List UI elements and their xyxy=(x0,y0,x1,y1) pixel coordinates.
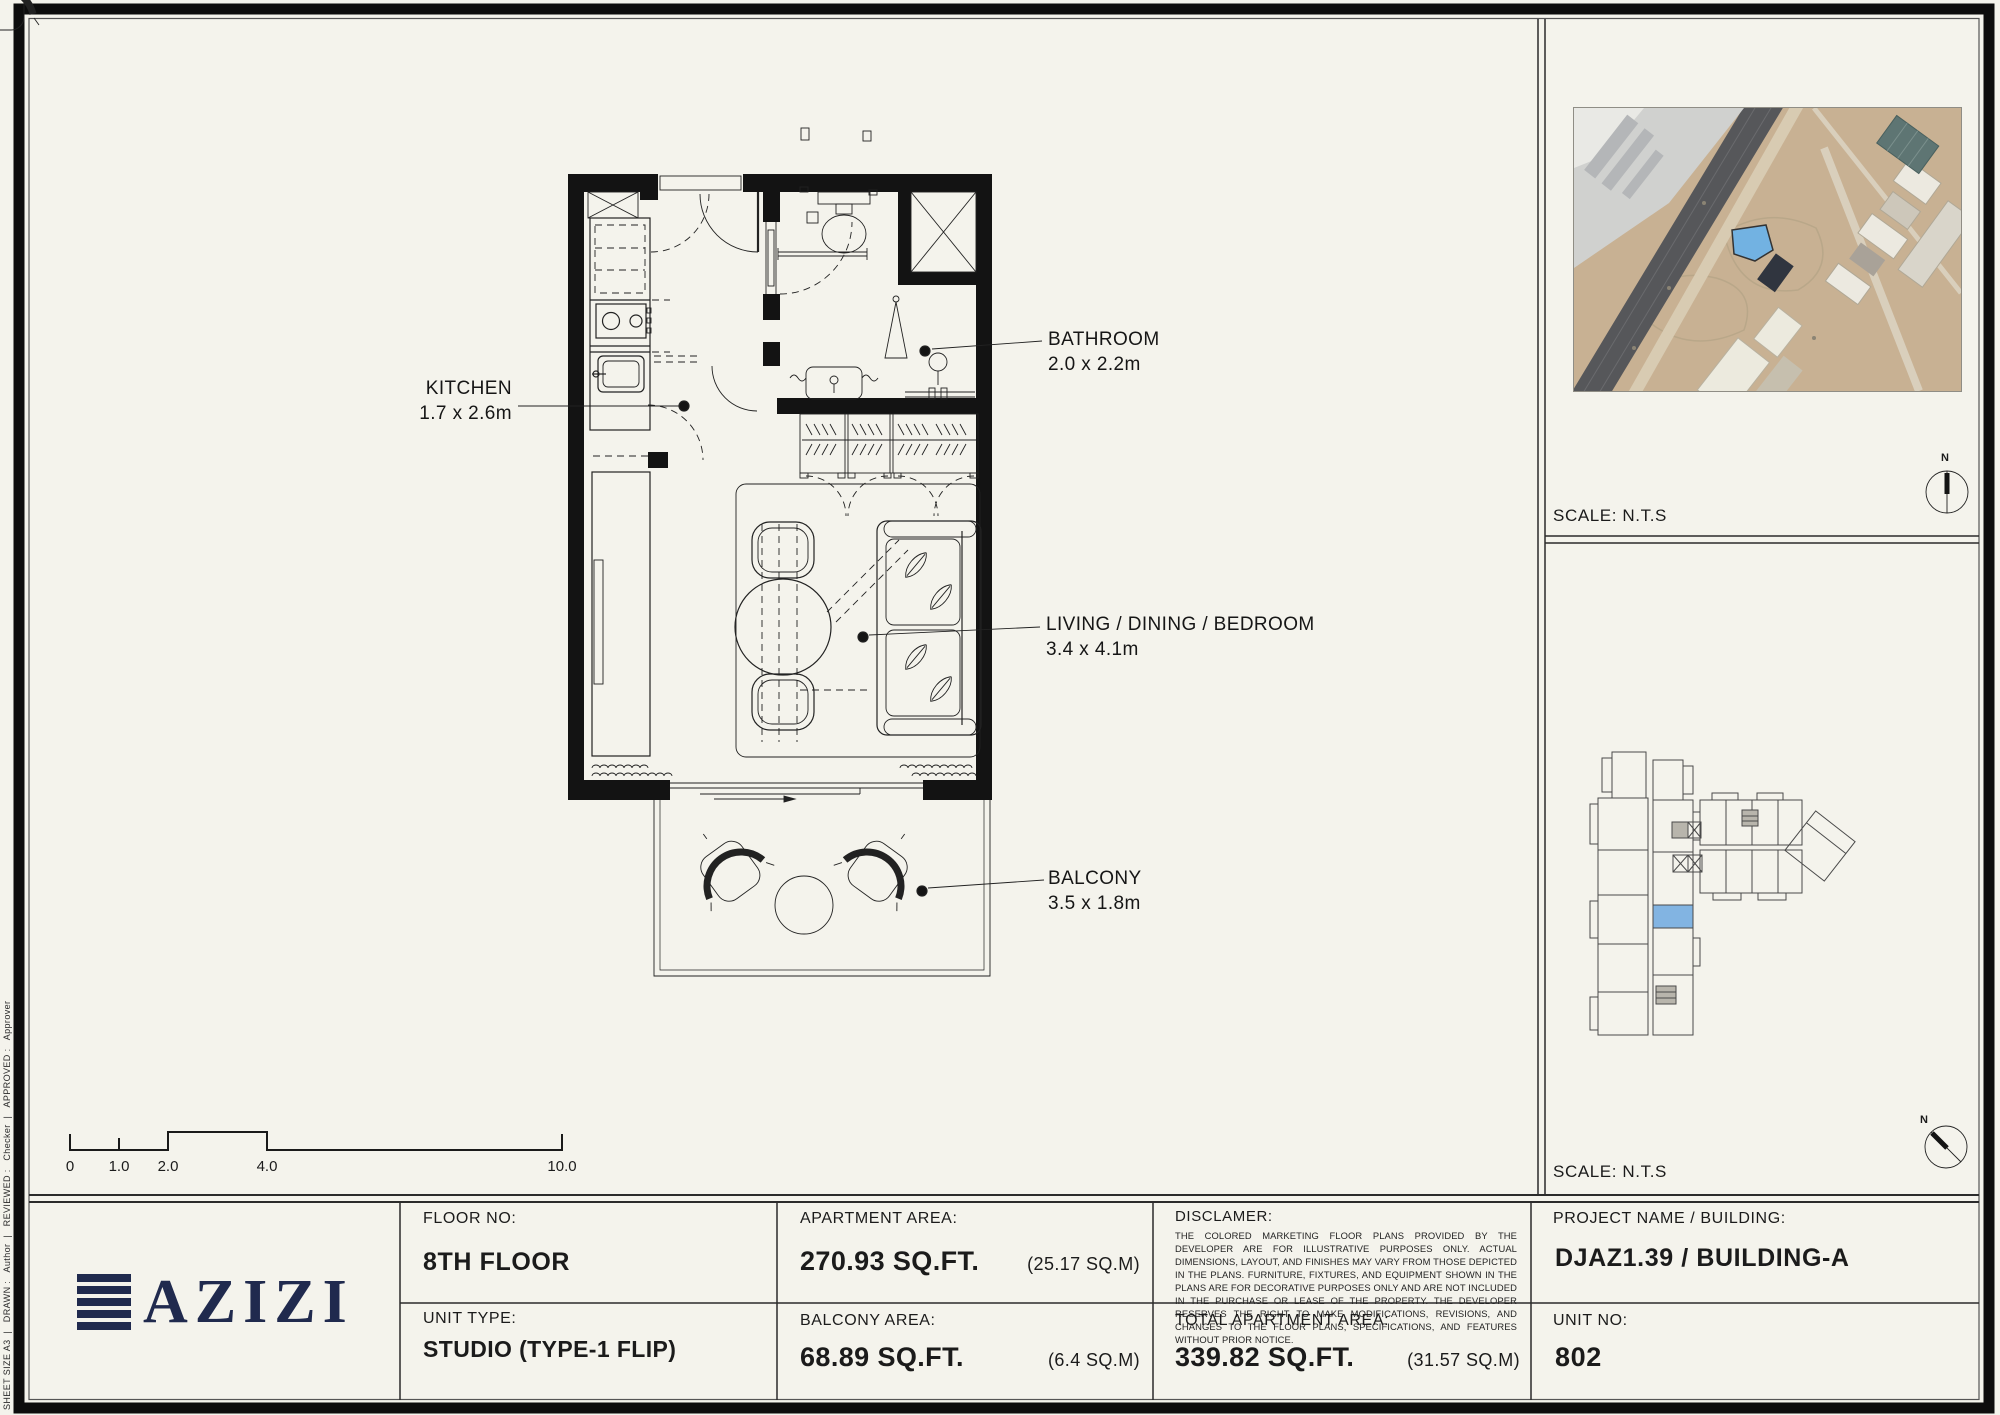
room-label-kitchen: KITCHEN 1.7 x 2.6m xyxy=(330,376,512,426)
drawn-label: DRAWN : xyxy=(2,1281,12,1322)
north-compass-icon xyxy=(1925,1126,1967,1168)
azizi-logo-bars-icon xyxy=(77,1274,131,1330)
curtain-icon xyxy=(592,773,672,776)
balcony-outline xyxy=(0,0,990,976)
north-compass-icon xyxy=(1926,471,1968,513)
scale-tick: 2.0 xyxy=(158,1158,179,1175)
floor-no-value: 8TH FLOOR xyxy=(423,1248,570,1277)
total-area-value: 339.82 SQ.FT. xyxy=(1175,1342,1354,1373)
dining-table-icon xyxy=(735,579,831,675)
room-label-living: LIVING / DINING / BEDROOM 3.4 x 4.1m xyxy=(1046,612,1315,662)
scale-tick: 0 xyxy=(66,1158,74,1175)
sheet-margin-info: SHEET SIZE A3 | DRAWN : Author | REVIEWE… xyxy=(2,698,12,1410)
wall-lamp-icon xyxy=(929,353,947,371)
total-area-sqm: (31.57 SQ.M) xyxy=(1407,1350,1520,1371)
scale-bar xyxy=(70,1132,562,1150)
highlighted-unit xyxy=(1653,905,1693,928)
total-area-row: 339.82 SQ.FT. (31.57 SQ.M) xyxy=(1175,1342,1520,1373)
reviewed-label: REVIEWED : xyxy=(2,1169,12,1226)
balcony-area-value: 68.89 SQ.FT. xyxy=(800,1342,964,1373)
sink-icon xyxy=(592,356,644,392)
room-name: KITCHEN xyxy=(426,378,512,399)
satellite-location-map xyxy=(1573,107,1962,392)
scale-tick: 1.0 xyxy=(109,1158,130,1175)
floor-no-label: FLOOR NO: xyxy=(423,1210,516,1228)
scale-tick: 10.0 xyxy=(547,1158,576,1175)
disclaimer-label: DISCLAMER: xyxy=(1175,1208,1273,1225)
north-label: N xyxy=(1920,1114,1928,1126)
dining-chair-icon xyxy=(752,522,814,578)
room-dims: 3.5 x 1.8m xyxy=(1048,893,1141,914)
leaf-cushion-icon xyxy=(901,549,956,705)
duct-shaft-icon xyxy=(588,192,638,218)
curtain-icon xyxy=(592,765,648,768)
keyplan-scale-label: SCALE: N.T.S xyxy=(1553,1162,1667,1182)
drawn-value: Author xyxy=(2,1244,12,1273)
project-name-value: DJAZ1.39 / BUILDING-A xyxy=(1555,1244,1850,1273)
unit-walls xyxy=(568,174,992,800)
balcony-area-label: BALCONY AREA: xyxy=(800,1312,936,1330)
kitchen-counter xyxy=(590,218,700,756)
room-label-bathroom: BATHROOM 2.0 x 2.2m xyxy=(1048,327,1160,377)
apartment-area-value: 270.93 SQ.FT. xyxy=(800,1246,979,1277)
total-area-label: TOTAL APARTMENT AREA: xyxy=(1175,1312,1389,1330)
apartment-area-row: 270.93 SQ.FT. (25.17 SQ.M) xyxy=(800,1246,1140,1277)
hanger-icon xyxy=(806,424,836,455)
curtain-icon xyxy=(900,765,972,768)
room-dims: 1.7 x 2.6m xyxy=(419,403,512,424)
room-name: BATHROOM xyxy=(1048,329,1160,350)
room-name: LIVING / DINING / BEDROOM xyxy=(1046,614,1315,635)
room-name: BALCONY xyxy=(1048,868,1142,889)
map-scale-label: SCALE: N.T.S xyxy=(1553,506,1667,526)
bathroom-fixtures xyxy=(778,187,976,399)
curtain-icon xyxy=(912,773,976,776)
azizi-logo: AZIZI xyxy=(77,1274,354,1330)
living-furniture xyxy=(735,484,981,757)
approved-value: Approver xyxy=(2,1001,12,1041)
unit-type-value: STUDIO (TYPE-1 FLIP) xyxy=(423,1336,676,1363)
balcony-area-row: 68.89 SQ.FT. (6.4 SQ.M) xyxy=(800,1342,1140,1373)
wardrobe xyxy=(800,414,978,516)
unit-no-value: 802 xyxy=(1555,1342,1602,1373)
floorplan-sheet: .w{fill:#131313;stroke:none} .d{stroke-d… xyxy=(0,0,2000,1415)
unit-no-label: UNIT NO: xyxy=(1553,1312,1628,1330)
building-key-plan xyxy=(1590,752,1855,1035)
scale-tick: 4.0 xyxy=(257,1158,278,1175)
azizi-logo-text: AZIZI xyxy=(143,1274,354,1330)
balcony-table-icon xyxy=(775,876,833,934)
approved-label: APPROVED : xyxy=(2,1049,12,1108)
reviewed-value: Checker xyxy=(2,1124,12,1160)
room-dims: 3.4 x 4.1m xyxy=(1046,639,1139,660)
shower-icon xyxy=(885,296,907,358)
north-label: N xyxy=(1941,452,1949,464)
room-label-balcony: BALCONY 3.5 x 1.8m xyxy=(1048,866,1142,916)
stove-icon xyxy=(596,304,651,338)
sofa-icon xyxy=(877,521,981,735)
room-dims: 2.0 x 2.2m xyxy=(1048,354,1141,375)
balcony-area-sqm: (6.4 SQ.M) xyxy=(1048,1350,1140,1371)
unit-type-label: UNIT TYPE: xyxy=(423,1310,516,1328)
sheet-size: SHEET SIZE A3 xyxy=(2,1339,12,1410)
leader-lines xyxy=(518,341,1044,896)
vanity-sink-icon xyxy=(790,367,878,399)
dining-chair-icon xyxy=(752,674,814,730)
toilet-icon xyxy=(818,192,870,253)
apartment-area-sqm: (25.17 SQ.M) xyxy=(1027,1254,1140,1275)
apartment-area-label: APARTMENT AREA: xyxy=(800,1210,957,1228)
project-name-label: PROJECT NAME / BUILDING: xyxy=(1553,1210,1786,1228)
